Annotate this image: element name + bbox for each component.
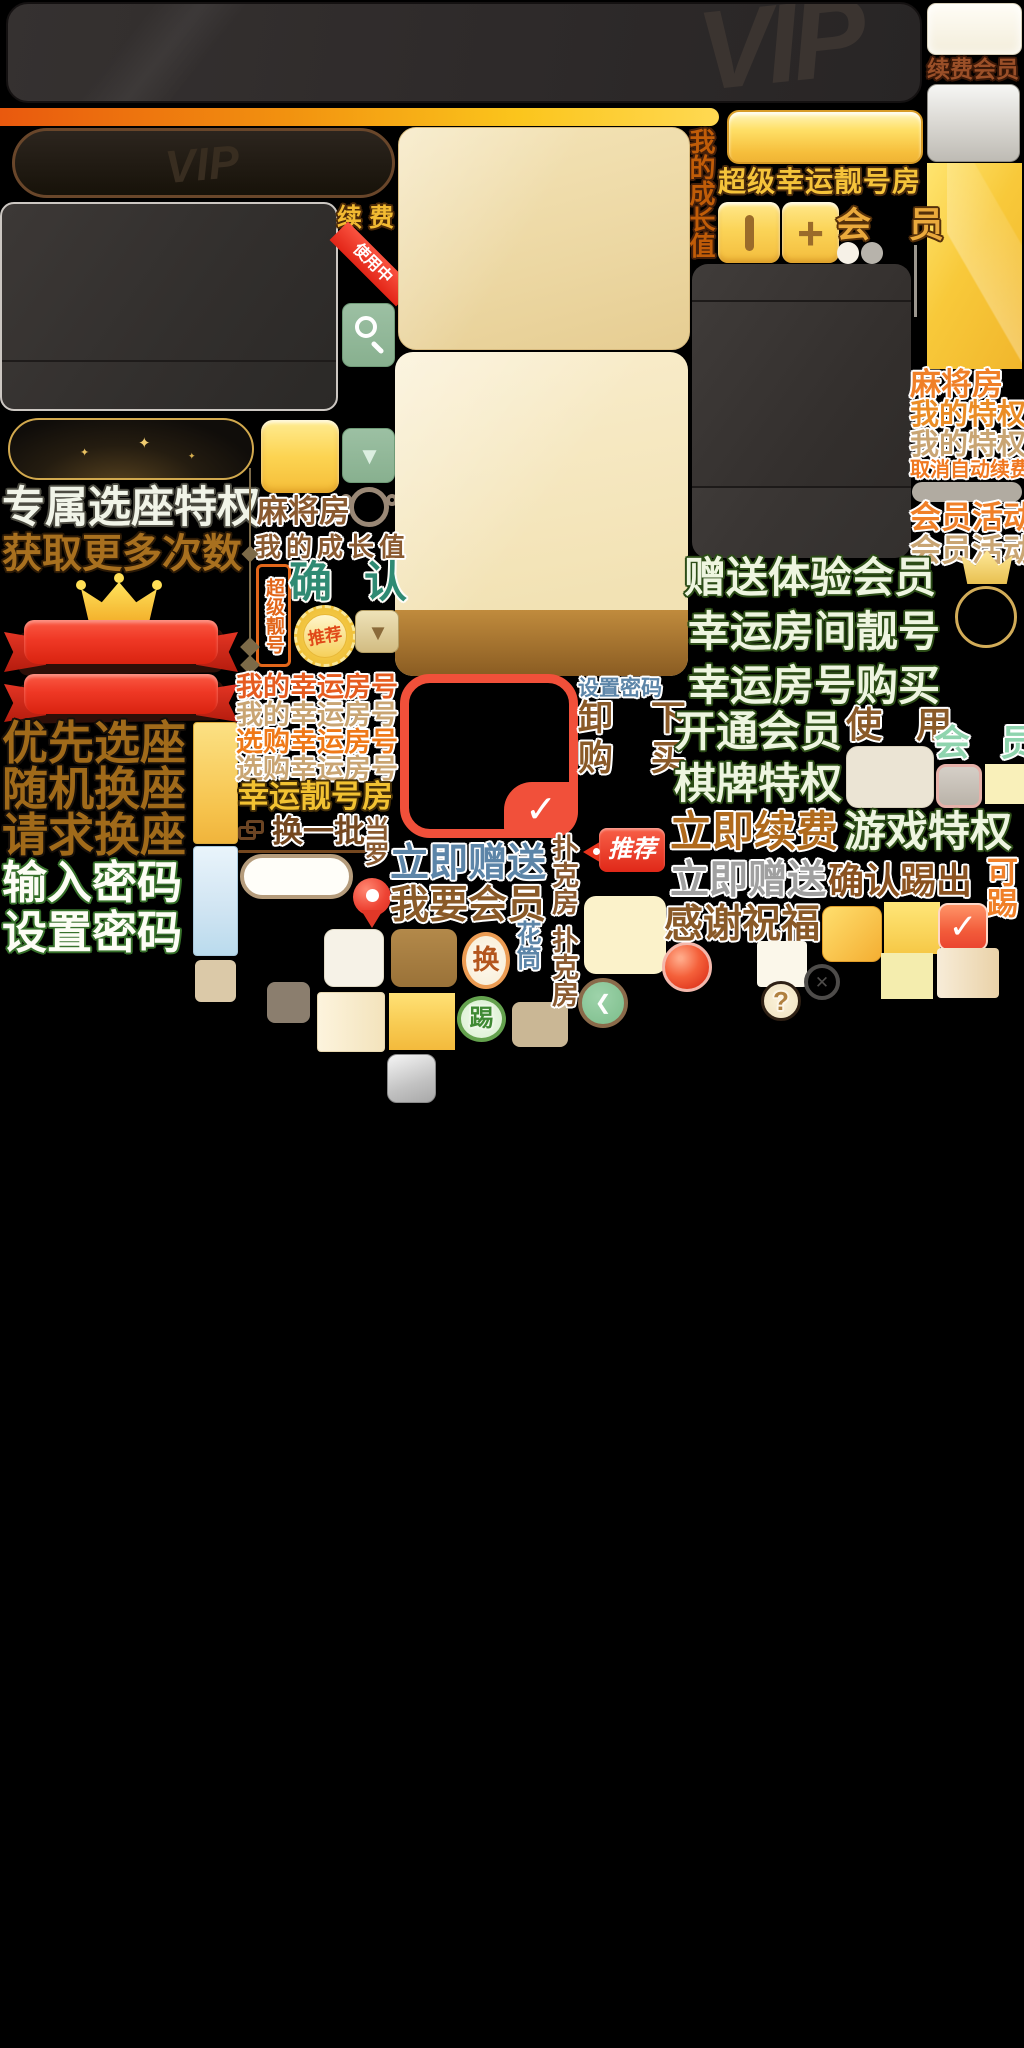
- gold-top-button[interactable]: [727, 110, 923, 164]
- yellow-bright-square: [884, 902, 940, 954]
- gray-pill: [912, 482, 1022, 502]
- dot-gray[interactable]: [861, 242, 883, 264]
- mahjong-room-right-label: 麻将房: [910, 369, 1003, 400]
- buy-lucky-number-orange: 选购幸运房号: [236, 729, 398, 756]
- vertical-arrow-line: [243, 468, 259, 678]
- vertical-chars-brown: 当罗: [362, 816, 387, 886]
- set-password-label: 设置密码: [2, 910, 182, 955]
- panel-facet: [399, 128, 690, 350]
- triangle-dropdown-button[interactable]: ▼: [342, 428, 395, 483]
- circle-ears-icon: [342, 484, 396, 534]
- renew-now-label: 立即续费: [670, 811, 838, 853]
- dot-white[interactable]: [837, 242, 859, 264]
- change-batch-underline: [238, 850, 366, 853]
- chevron-left-icon: ❮: [595, 993, 612, 1013]
- member-gold-label: 会 员: [836, 208, 958, 243]
- request-swap-seat-label: 请求换座: [2, 812, 186, 858]
- lucky-room-number-label: 幸运房间靓号: [688, 611, 940, 653]
- cream-rect: [317, 992, 385, 1052]
- give-now-gray-label: 立即赠送: [670, 861, 826, 900]
- board-privilege-label: 棋牌特权: [674, 763, 842, 805]
- panel-b-tan-footer: [395, 610, 688, 676]
- question-mark-label: ?: [773, 988, 789, 1014]
- dark-panel-left: [0, 202, 338, 411]
- bar-icon: [745, 215, 754, 251]
- confirm-label: 确 认: [289, 562, 417, 605]
- refresh-icon[interactable]: [238, 820, 268, 848]
- back-arrow-button[interactable]: ❮: [578, 978, 628, 1028]
- red-selection-box[interactable]: ✓: [400, 674, 578, 838]
- recommend-seal-badge: 推荐: [294, 605, 356, 667]
- search-icon-handle: [370, 340, 384, 354]
- exclusive-seat-label: 专属选座特权: [2, 487, 260, 530]
- pale-yellow-square-2: [881, 953, 933, 999]
- triangle-down-icon: ▼: [356, 611, 400, 654]
- member-mint-label: 会 员: [934, 725, 1024, 761]
- member-activity-orange-label: 会员活动: [910, 502, 1024, 533]
- vip-pill-watermark: VIP: [163, 138, 241, 190]
- check-button[interactable]: ✓: [938, 903, 988, 951]
- open-member-label: 开通会员: [674, 711, 842, 753]
- triangle-down-icon: ▼: [343, 429, 396, 484]
- sprite-sheet: VIP 续费会员 我的成长值 超级幸运靓号房 VIP 续 费 使用中 ✦ ✦ ✦…: [0, 0, 1024, 2048]
- recommend-tag-label: 推荐: [599, 828, 665, 872]
- in-use-ribbon: 使用中: [343, 233, 399, 301]
- renew-member-button[interactable]: [927, 3, 1022, 55]
- help-button[interactable]: ?: [761, 981, 801, 1021]
- lucky-number-room-label: 幸运靓号房: [238, 781, 393, 812]
- my-privilege-tan-label: 我的特权: [910, 431, 1024, 460]
- salmon-sphere: [662, 942, 712, 992]
- recommend-tag: 推荐: [583, 826, 673, 876]
- growth-value-vertical: 我的成长值: [688, 128, 714, 268]
- give-now-label: 立即赠送: [390, 844, 546, 883]
- change-batch-label[interactable]: 换一批: [272, 816, 365, 847]
- white-pill-button[interactable]: [240, 854, 353, 899]
- sparkle-icon: ✦: [80, 448, 89, 459]
- super-number-label: 超级靓号: [264, 578, 283, 654]
- confirm-kick-label: 确认踢出: [828, 863, 972, 899]
- cream-gradient-square: [937, 948, 999, 998]
- gray-pink-square: [936, 764, 982, 808]
- beige-rect-right: [846, 746, 934, 808]
- get-more-times-label: 获取更多次数: [2, 534, 242, 574]
- thanks-blessing-label: 感谢祝福: [664, 905, 820, 944]
- search-button[interactable]: [342, 303, 395, 367]
- tan-triangle-button[interactable]: ▼: [355, 610, 399, 653]
- pale-yellow-rect: [584, 896, 666, 974]
- selection-check-corner: ✓: [504, 782, 578, 838]
- swap-label: 换: [473, 947, 500, 974]
- renew-member-label: 续费会员: [922, 58, 1024, 81]
- super-number-box: 超级靓号: [256, 564, 291, 667]
- plus-icon: +: [797, 210, 824, 256]
- panel-seam: [2, 360, 336, 362]
- growth-progress-bar: [0, 108, 719, 126]
- vip-pill-banner: VIP: [12, 128, 395, 198]
- yellow-gradient-rect: [389, 993, 455, 1050]
- black-sparkle-pill[interactable]: ✦ ✦ ✦: [8, 418, 254, 480]
- gold-column: [927, 163, 1022, 369]
- my-lucky-number-orange: 我的幸运房号: [236, 674, 398, 701]
- white-square: [324, 929, 384, 987]
- random-swap-seat-label: 随机换座: [2, 766, 186, 812]
- yellow-button-small[interactable]: [261, 420, 339, 493]
- check-icon: ✓: [525, 791, 557, 829]
- my-lucky-number-tan: 我的幸运房号: [236, 702, 398, 729]
- cancel-auto-renew-label: 取消自动续费: [910, 460, 1024, 480]
- set-password-blue-label: 设置密码: [578, 678, 662, 699]
- blue-tall-rect: [193, 846, 238, 956]
- mahjong-room-label: 麻将房: [257, 496, 350, 527]
- crown-ring-icon: [948, 548, 1024, 652]
- vertical-chars-blue: 花筒: [514, 920, 539, 990]
- plus-button[interactable]: +: [782, 202, 839, 263]
- beige-square: [195, 960, 236, 1002]
- cream-panel-b: [395, 352, 688, 676]
- gift-trial-member-label: 赠送体验会员: [684, 557, 936, 599]
- brown-square: [391, 929, 457, 987]
- recommend-seal-label: 推荐: [293, 604, 358, 669]
- swap-button[interactable]: 换: [462, 932, 510, 989]
- growth-value-label: 我的成长值: [255, 534, 410, 560]
- check-icon: ✓: [949, 910, 978, 944]
- gold-facet: [947, 163, 1022, 369]
- super-lucky-room-label: 超级幸运靓号房: [718, 168, 921, 196]
- kick-label: 踢: [470, 1007, 494, 1031]
- yellow-tall-rect: [193, 722, 238, 844]
- lucky-number-buy-label: 幸运房号购买: [688, 665, 940, 707]
- pale-yellow-square: [985, 764, 1024, 804]
- poker-room-vertical: 扑克房: [549, 834, 576, 926]
- my-privilege-gold-label: 我的特权: [910, 401, 1024, 430]
- banner-sheen: [67, 2, 259, 103]
- game-privilege-label: 游戏特权: [844, 811, 1012, 853]
- close-icon: ✕: [815, 974, 829, 991]
- kickable-vertical-label: 可踢: [984, 856, 1015, 922]
- cream-panel-a: [398, 127, 690, 350]
- graybrown-square: [267, 982, 310, 1023]
- silver-button[interactable]: [927, 84, 1020, 162]
- top-vip-banner: VIP: [6, 2, 922, 103]
- silver-square: [387, 1054, 436, 1103]
- close-button[interactable]: ✕: [804, 964, 840, 1000]
- vertical-divider: [914, 245, 917, 317]
- red-ribbon: [4, 616, 238, 678]
- minus-button[interactable]: [718, 202, 780, 263]
- poker-room-vertical: 扑克房: [549, 926, 576, 1018]
- search-icon: [355, 316, 377, 338]
- dark-panel-right: [692, 264, 911, 558]
- yellow-gradient-square: [822, 906, 882, 962]
- priority-seat-label: 优先选座: [2, 720, 186, 766]
- enter-password-label: 输入密码: [2, 860, 182, 905]
- location-pin-icon: [350, 878, 394, 932]
- sparkle-icon: ✦: [188, 452, 196, 461]
- sparkle-icon: ✦: [138, 436, 151, 451]
- vip-watermark: VIP: [693, 2, 866, 103]
- kick-button[interactable]: 踢: [457, 996, 506, 1042]
